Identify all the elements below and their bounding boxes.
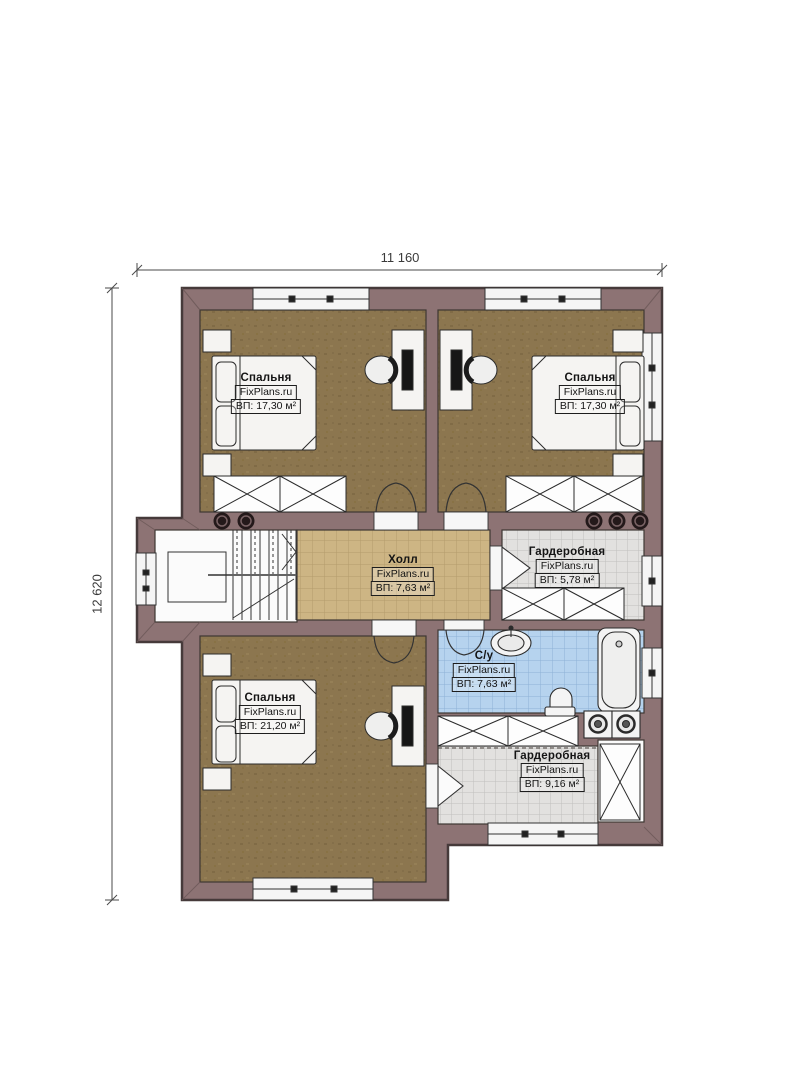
nightstand — [203, 768, 231, 790]
room-label-bedroom-top-left: Спальня FixPlans.ru ВП: 17,30 м² — [231, 372, 301, 414]
floor-plan-drawing — [0, 0, 792, 1080]
window — [642, 556, 662, 606]
room-area: ВП: 17,30 м² — [231, 399, 301, 414]
nightstand — [203, 330, 231, 352]
room-area: ВП: 17,30 м² — [555, 399, 625, 414]
room-label-hall: Холл FixPlans.ru ВП: 7,63 м² — [371, 554, 435, 596]
dimension-width-label: 11 160 — [381, 250, 420, 265]
window — [136, 553, 156, 605]
office-chair — [465, 356, 497, 384]
wardrobe-cabinet — [564, 588, 624, 620]
spotlight — [609, 513, 626, 530]
spotlight — [214, 513, 231, 530]
room-name: Гардеробная — [529, 546, 606, 558]
room-area: ВП: 7,63 м² — [371, 581, 435, 596]
wardrobe-cabinet — [214, 476, 280, 512]
room-area: ВП: 5,78 м² — [535, 573, 599, 588]
wardrobe-cabinet — [502, 588, 564, 620]
room-name: Гардеробная — [514, 750, 591, 762]
spotlight — [586, 513, 603, 530]
room-area: ВП: 7,63 м² — [452, 677, 516, 692]
window — [485, 288, 601, 310]
wardrobe-cabinet — [280, 476, 346, 512]
window — [642, 648, 662, 698]
floor-plan-page: 11 160 12 620 Спальня FixPlans.ru ВП: 17… — [0, 0, 792, 1080]
dimension-height-label: 12 620 — [90, 574, 105, 614]
wardrobe-cabinet — [574, 476, 642, 512]
wardrobe-cabinet — [600, 744, 640, 820]
washing-machine — [612, 711, 640, 738]
nightstand — [203, 654, 231, 676]
room-area: ВП: 9,16 м² — [520, 777, 584, 792]
room-area: ВП: 21,20 м² — [235, 719, 305, 734]
wardrobe-cabinet — [508, 716, 578, 746]
room-label-bathroom: С/у FixPlans.ru ВП: 7,63 м² — [452, 650, 516, 692]
window — [253, 878, 373, 900]
washing-machine — [584, 711, 612, 738]
window — [253, 288, 369, 310]
spotlight — [632, 513, 649, 530]
wardrobe-cabinet — [438, 716, 508, 746]
room-name: Спальня — [244, 692, 295, 704]
window — [642, 333, 662, 441]
room-label-bedroom-top-right: Спальня FixPlans.ru ВП: 17,30 м² — [555, 372, 625, 414]
nightstand — [613, 330, 643, 352]
room-name: Спальня — [564, 372, 615, 384]
bathtub — [598, 628, 640, 712]
room-label-bedroom-bottom: Спальня FixPlans.ru ВП: 21,20 м² — [235, 692, 305, 734]
spotlight — [238, 513, 255, 530]
room-label-wardrobe-mid: Гардеробная FixPlans.ru ВП: 5,78 м² — [529, 546, 606, 588]
nightstand — [203, 454, 231, 476]
window — [488, 823, 598, 845]
nightstand — [613, 454, 643, 476]
room-name: Спальня — [240, 372, 291, 384]
office-chair — [365, 712, 397, 740]
wardrobe-cabinet — [506, 476, 574, 512]
room-label-wardrobe-bottom: Гардеробная FixPlans.ru ВП: 9,16 м² — [514, 750, 591, 792]
office-chair — [365, 356, 397, 384]
room-name: Холл — [388, 554, 418, 566]
room-name: С/у — [475, 650, 494, 662]
